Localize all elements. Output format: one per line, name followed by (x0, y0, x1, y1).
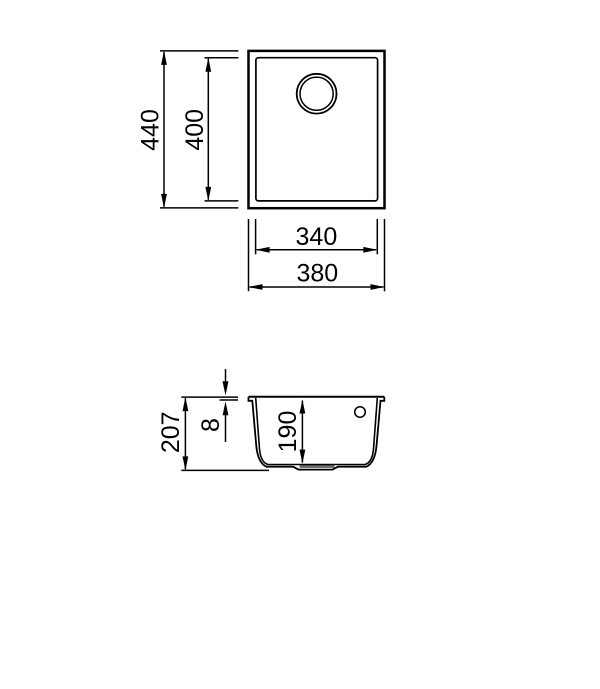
svg-text:380: 380 (296, 260, 338, 288)
svg-text:190: 190 (274, 411, 302, 453)
svg-text:207: 207 (157, 411, 185, 453)
svg-text:8: 8 (197, 418, 225, 432)
svg-text:400: 400 (181, 109, 209, 151)
svg-text:340: 340 (296, 223, 338, 251)
svg-text:440: 440 (137, 109, 165, 151)
